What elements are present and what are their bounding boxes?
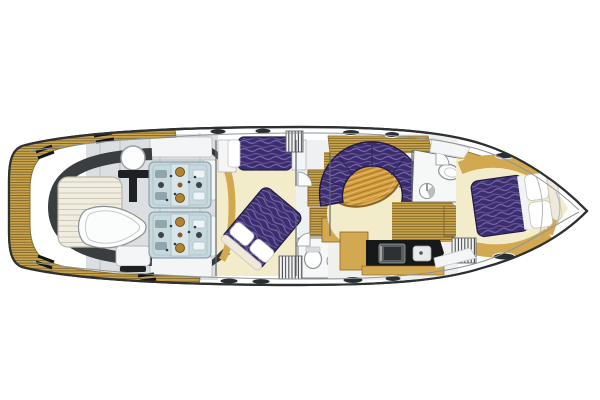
stair-vent-louver bbox=[286, 131, 303, 152]
galley-cabinet-strip bbox=[362, 266, 444, 275]
port-engine bbox=[149, 162, 211, 208]
twin-berth-pillow bbox=[228, 140, 240, 167]
cockpit-locker bbox=[116, 246, 150, 266]
deck-panel bbox=[150, 257, 212, 277]
galley-faucet bbox=[419, 251, 423, 255]
deck-plan-canvas bbox=[0, 0, 600, 400]
cockpit-seat bbox=[121, 146, 145, 170]
twin-berth bbox=[238, 137, 292, 170]
yacht-deck-plan bbox=[0, 0, 600, 400]
galley-cabinet bbox=[340, 232, 368, 270]
cockpit-wetbar bbox=[118, 170, 152, 178]
cooktop-inner bbox=[384, 247, 401, 260]
starboard-engine bbox=[149, 212, 211, 258]
cockpit-wetbar bbox=[120, 266, 146, 272]
cockpit-wetbar bbox=[129, 178, 137, 202]
aft-head-vent-louver bbox=[279, 256, 302, 279]
deck-panel bbox=[150, 137, 212, 157]
toilet bbox=[305, 250, 322, 269]
fwd-pillow bbox=[528, 200, 553, 229]
toilet-tank bbox=[306, 247, 320, 252]
